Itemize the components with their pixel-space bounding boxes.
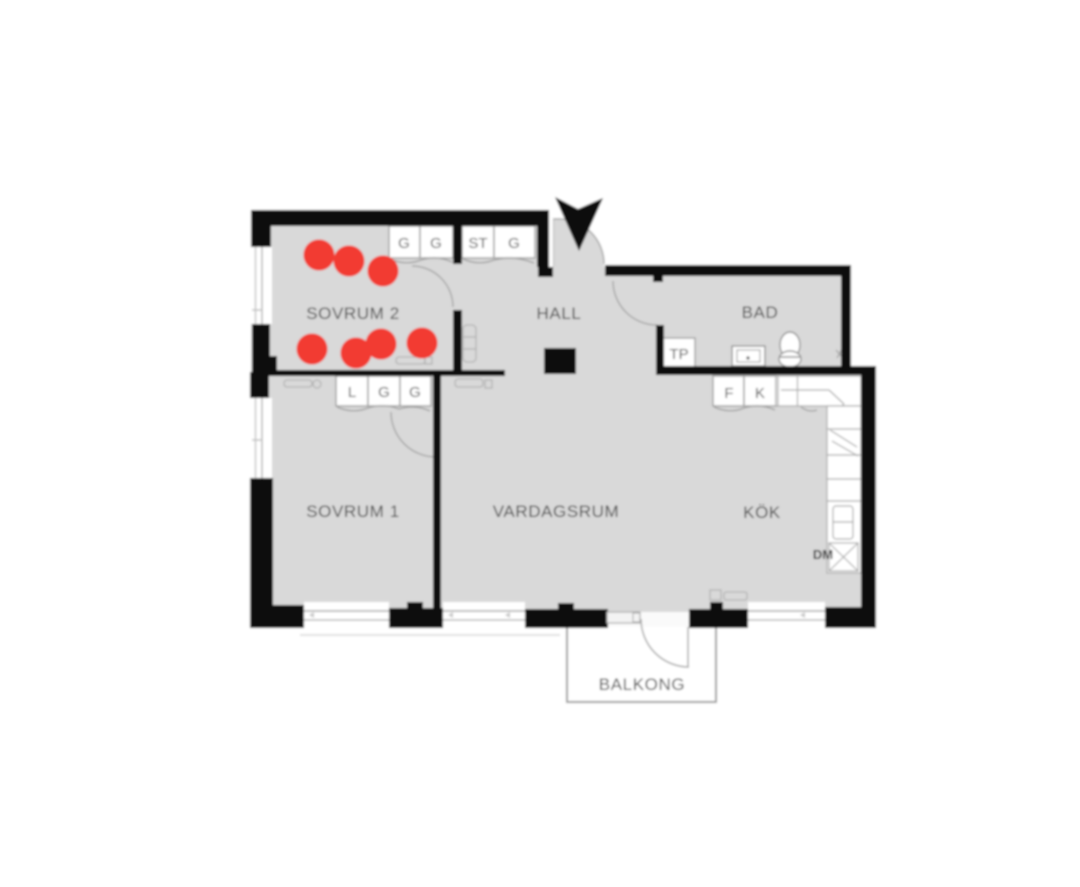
svg-text:G: G (508, 235, 520, 252)
svg-text:SOVRUM 2: SOVRUM 2 (306, 304, 400, 323)
svg-text:VARDAGSRUM: VARDAGSRUM (493, 502, 620, 521)
svg-text:L: L (348, 384, 356, 401)
svg-text:DM: DM (813, 547, 833, 562)
svg-text:G: G (409, 384, 421, 401)
svg-text:G: G (430, 235, 442, 252)
svg-text:F: F (724, 385, 733, 402)
svg-text:HALL: HALL (537, 304, 582, 323)
svg-text:BAD: BAD (742, 303, 779, 322)
svg-text:K: K (755, 385, 765, 402)
svg-text:BALKONG: BALKONG (599, 675, 685, 694)
svg-text:G: G (398, 235, 410, 252)
svg-text:KÖK: KÖK (743, 503, 781, 522)
svg-text:G: G (378, 384, 390, 401)
svg-text:ST: ST (468, 235, 487, 252)
svg-text:SOVRUM 1: SOVRUM 1 (306, 502, 400, 521)
svg-text:TP: TP (669, 346, 688, 363)
